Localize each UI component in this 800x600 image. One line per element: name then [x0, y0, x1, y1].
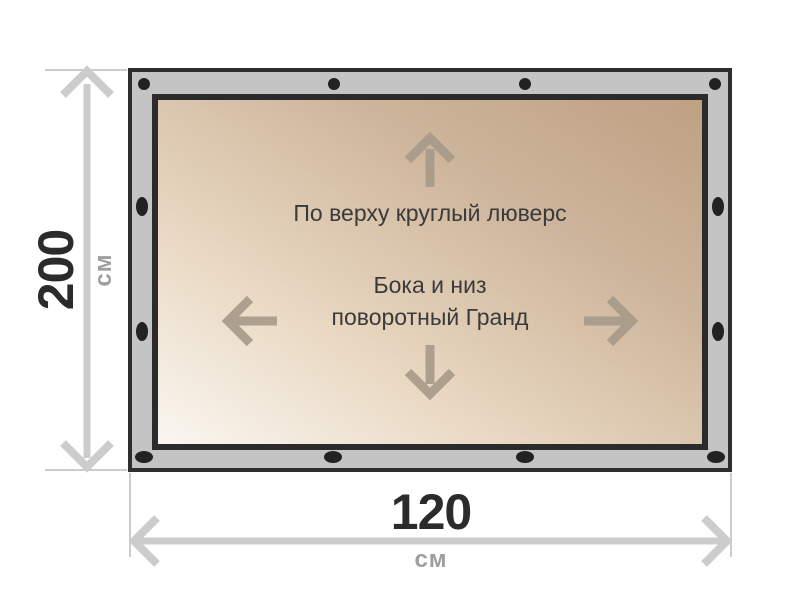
round-grommet — [328, 78, 340, 90]
oval-grommet — [707, 451, 725, 463]
oval-grommet — [712, 322, 724, 341]
oval-grommet — [135, 451, 153, 463]
height-value-label: 200 — [30, 200, 82, 340]
top-grommet-note: По верху круглый люверс — [152, 199, 708, 227]
oval-grommet — [516, 451, 534, 463]
oval-grommet — [136, 197, 148, 216]
width-value-label: 120 — [331, 486, 531, 538]
width-unit-label: см — [381, 547, 481, 573]
side-grommet-note-line2: поворотный Гранд — [152, 301, 708, 333]
round-grommet — [138, 78, 150, 90]
side-grommet-note: Бока и низ поворотный Гранд — [152, 269, 708, 333]
side-grommet-note-line1: Бока и низ — [152, 269, 708, 301]
oval-grommet — [324, 451, 342, 463]
round-grommet — [709, 78, 721, 90]
arrow-up-icon — [63, 71, 111, 95]
arrow-down-icon — [63, 443, 111, 467]
oval-grommet — [712, 197, 724, 216]
arrow-right-icon — [704, 518, 727, 564]
height-unit-label: см — [91, 240, 117, 300]
round-grommet — [519, 78, 531, 90]
oval-grommet — [136, 322, 148, 341]
arrow-left-icon — [134, 518, 157, 564]
diagram-canvas: По верху круглый люверс Бока и низ повор… — [0, 0, 800, 600]
